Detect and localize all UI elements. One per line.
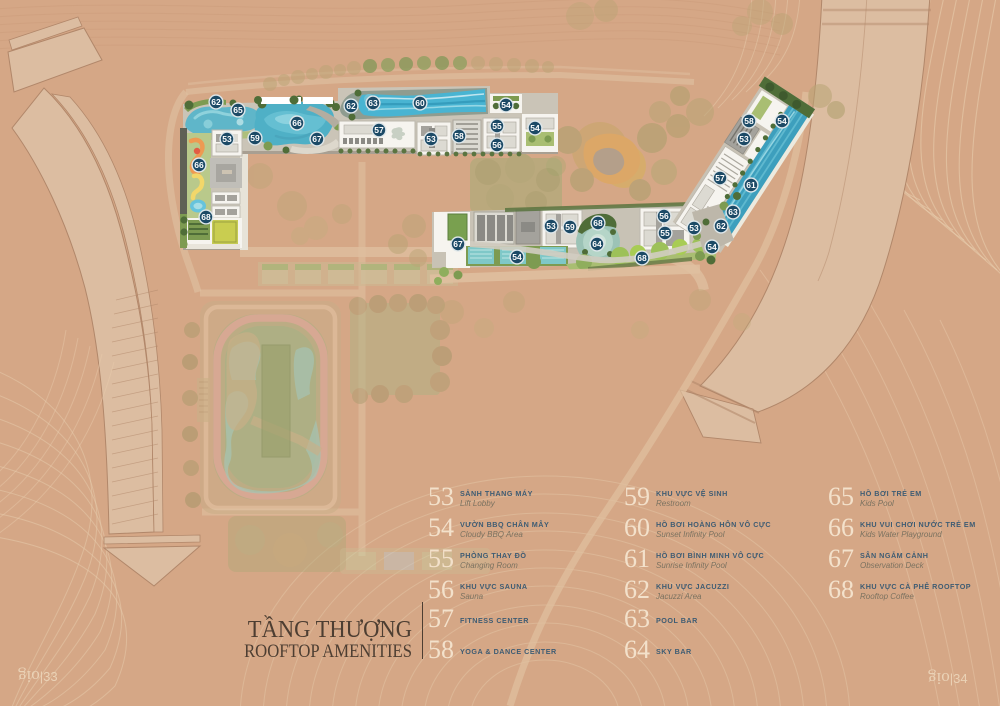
svg-text:58: 58 — [744, 116, 754, 126]
svg-text:54: 54 — [777, 116, 787, 126]
svg-text:67: 67 — [312, 134, 322, 144]
svg-text:62: 62 — [716, 221, 726, 231]
svg-text:68: 68 — [593, 218, 603, 228]
svg-text:56: 56 — [659, 211, 669, 221]
svg-text:60: 60 — [415, 98, 425, 108]
svg-text:67: 67 — [453, 239, 463, 249]
svg-text:53: 53 — [689, 223, 699, 233]
svg-text:53: 53 — [426, 134, 436, 144]
svg-text:62: 62 — [211, 97, 221, 107]
svg-text:64: 64 — [592, 239, 602, 249]
svg-text:59: 59 — [250, 133, 260, 143]
svg-text:55: 55 — [492, 121, 502, 131]
svg-text:63: 63 — [368, 98, 378, 108]
svg-text:68: 68 — [637, 253, 647, 263]
svg-text:57: 57 — [715, 173, 725, 183]
svg-text:56: 56 — [492, 140, 502, 150]
svg-text:59: 59 — [565, 222, 575, 232]
svg-text:54: 54 — [530, 123, 540, 133]
svg-text:57: 57 — [374, 125, 384, 135]
svg-text:55: 55 — [660, 228, 670, 238]
svg-text:53: 53 — [739, 134, 749, 144]
svg-text:54: 54 — [512, 252, 522, 262]
svg-text:53: 53 — [546, 221, 556, 231]
svg-text:53: 53 — [222, 134, 232, 144]
svg-text:61: 61 — [746, 180, 756, 190]
svg-text:54: 54 — [707, 242, 717, 252]
svg-text:66: 66 — [194, 160, 204, 170]
svg-text:65: 65 — [233, 105, 243, 115]
svg-text:54: 54 — [501, 100, 511, 110]
svg-text:58: 58 — [454, 131, 464, 141]
svg-text:63: 63 — [728, 207, 738, 217]
svg-text:68: 68 — [201, 212, 211, 222]
svg-text:62: 62 — [346, 101, 356, 111]
svg-text:66: 66 — [292, 118, 302, 128]
